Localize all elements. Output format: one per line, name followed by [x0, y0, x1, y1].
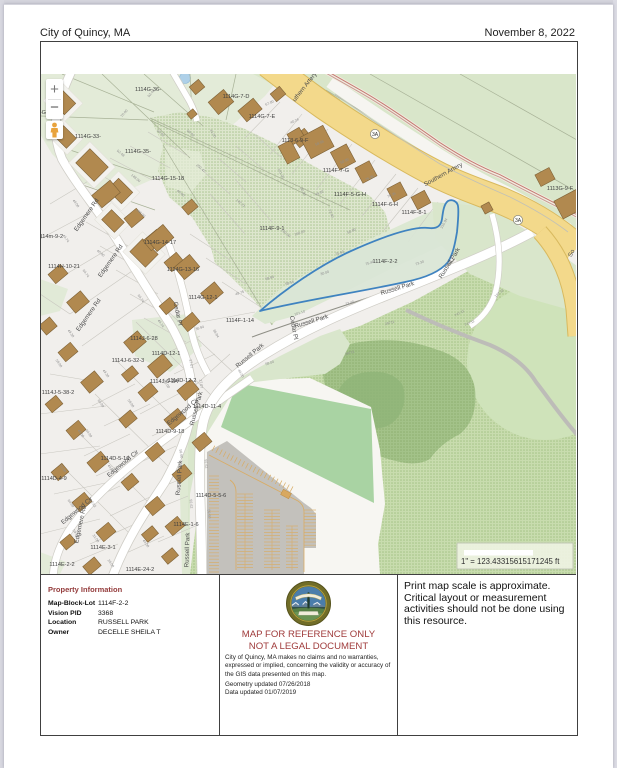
svg-text:1114D-11-4: 1114D-11-4: [193, 404, 221, 410]
svg-text:1113-6-9-F: 1113-6-9-F: [282, 138, 309, 144]
svg-text:1114F-2-2: 1114F-2-2: [373, 259, 398, 265]
svg-text:92.62: 92.62: [204, 459, 209, 468]
svg-text:1114E-2-2: 1114E-2-2: [49, 562, 74, 568]
svg-text:1114D-4-9: 1114D-4-9: [41, 476, 67, 482]
svg-text:59.60: 59.60: [207, 509, 212, 518]
svg-text:1114G-14-17: 1114G-14-17: [144, 240, 176, 246]
svg-text:1114E-1-6: 1114E-1-6: [173, 522, 198, 528]
svg-text:1114J-6-28: 1114J-6-28: [130, 336, 157, 342]
svg-text:1114D-5-5-6: 1114D-5-5-6: [196, 493, 227, 499]
svg-text:1114G-13-16: 1114G-13-16: [167, 267, 199, 273]
svg-text:1114J-6-32-3: 1114J-6-32-3: [112, 358, 144, 364]
svg-text:3A: 3A: [515, 218, 522, 224]
svg-text:Russell Park: Russell Park: [183, 532, 191, 568]
svg-text:1114G-35-: 1114G-35-: [125, 149, 151, 155]
svg-text:1114F-8-1: 1114F-8-1: [402, 210, 427, 216]
svg-text:1114G-15-18: 1114G-15-18: [152, 176, 184, 182]
svg-text:1114G-36-: 1114G-36-: [135, 87, 161, 93]
svg-text:1114G-7-E: 1114G-7-E: [249, 114, 276, 120]
svg-text:1114D-5-16: 1114D-5-16: [101, 456, 130, 462]
svg-text:1114F-7-G: 1114F-7-G: [323, 168, 349, 174]
svg-text:1114D-12-1: 1114D-12-1: [152, 351, 181, 357]
svg-text:1114F-1-14: 1114F-1-14: [226, 318, 254, 324]
svg-text:1114J-5-38-2: 1114J-5-38-2: [42, 390, 74, 396]
svg-text:3A: 3A: [372, 132, 379, 138]
svg-text:1114F-6-H: 1114F-6-H: [372, 202, 398, 208]
svg-text:1114G-33-: 1114G-33-: [75, 134, 101, 140]
svg-text:1114F-5-G-H: 1114F-5-G-H: [334, 192, 366, 198]
svg-text:1114m-9-2: 1114m-9-2: [41, 234, 63, 240]
svg-text:1114D-9-18: 1114D-9-18: [156, 429, 185, 435]
svg-text:1114H-10-21: 1114H-10-21: [48, 264, 80, 270]
svg-text:1114G-7-D: 1114G-7-D: [223, 94, 250, 100]
svg-text:1114E-3-1: 1114E-3-1: [90, 545, 115, 551]
svg-text:1" = 123.43315615171245 ft: 1" = 123.43315615171245 ft: [461, 557, 560, 566]
svg-text:1114G-12-1: 1114G-12-1: [188, 295, 217, 301]
svg-text:92.62: 92.62: [189, 499, 194, 508]
svg-text:1113G-9-F: 1113G-9-F: [547, 186, 574, 192]
svg-text:1114E-24-2: 1114E-24-2: [126, 567, 154, 573]
